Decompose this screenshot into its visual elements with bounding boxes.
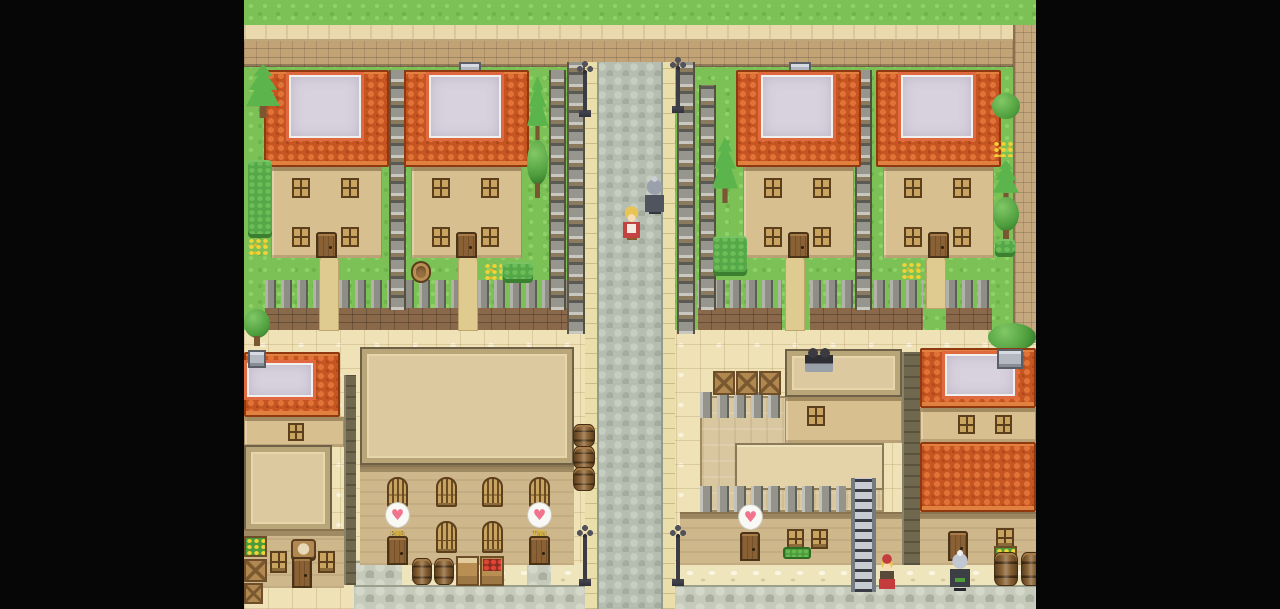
hedge-c: [995, 239, 1015, 257]
east-house-window-c: [996, 528, 1014, 548]
house-3-window-c: [764, 227, 782, 247]
npc-knight-road[interactable]: [644, 175, 665, 214]
house-1-window-d: [341, 227, 359, 247]
west-shop-sign: [291, 539, 316, 559]
west-shop-window-b: [318, 551, 335, 573]
house-1-door[interactable]: [316, 232, 337, 258]
courtyard-crate-a: [713, 371, 735, 395]
npc-knight-south[interactable]: [949, 550, 971, 591]
letterbox-right: [1036, 0, 1280, 609]
road-barrel-b: [573, 446, 595, 469]
pub-barrel-b: [434, 558, 454, 585]
street-lamp-top-east: [670, 56, 686, 113]
house-4-skylight: [898, 72, 976, 141]
pub-arch-window-e: [436, 521, 457, 553]
west-crate-b: [244, 583, 263, 604]
house-2-window-a: [432, 178, 450, 198]
south-inn-planter: [783, 547, 811, 559]
pub-arch-window-c: [482, 477, 503, 507]
road-barrel-a: [573, 424, 595, 447]
house-4-door[interactable]: [928, 232, 949, 258]
courtyard-crate-c: [759, 371, 781, 395]
house-1-skylight: [286, 72, 364, 141]
path-house-1: [319, 253, 339, 331]
south-inn-heart-sign-icon: [738, 504, 763, 530]
round-tree-b: [993, 197, 1019, 241]
player-character[interactable]: [622, 203, 641, 240]
east-border-wall: [1013, 25, 1036, 343]
round-tree-a: [527, 140, 548, 198]
east-dark-wall: [902, 352, 920, 565]
house-2-window-c: [432, 227, 450, 247]
west-shop-chimney: [248, 350, 266, 368]
east-house-chimney: [997, 349, 1023, 369]
house-2-door[interactable]: [456, 232, 477, 258]
pub-arch-window-f: [482, 521, 503, 553]
west-crate-a: [244, 559, 267, 582]
west-flowerbox: [244, 536, 267, 557]
east-house-window-b: [995, 415, 1012, 434]
house-2-window-b: [481, 178, 499, 198]
apple-stand: [480, 556, 504, 586]
west-shop-flatroof: [244, 445, 332, 531]
east-house-roof-lower: [920, 442, 1036, 512]
hedge-column: [248, 160, 272, 238]
cobble-street: [354, 585, 1036, 609]
pub-barrel-a: [412, 558, 432, 585]
courtyard-crate-b: [736, 371, 758, 395]
east-house-wall: [920, 512, 1036, 565]
flowers-d: [993, 141, 1013, 157]
path-house-3: [785, 253, 805, 331]
west-shop-window-a: [270, 551, 287, 573]
house-4-window-d: [953, 227, 971, 247]
hedge-b: [713, 236, 747, 276]
street-lamp-bottom-east: [670, 524, 686, 586]
bush-a: [992, 93, 1020, 119]
warehouse-wall: [785, 397, 902, 443]
stone-fence-a: [265, 280, 319, 330]
pub-door[interactable]: [387, 536, 408, 565]
market-stand: [456, 556, 479, 586]
pillar-fence-b: [549, 70, 566, 310]
warehouse-window: [807, 406, 825, 426]
path-house-2: [458, 253, 478, 331]
hedge-a: [503, 262, 533, 283]
house-1-window-b: [341, 178, 359, 198]
flowers-b: [901, 262, 921, 279]
west-shop-band-window: [288, 423, 304, 441]
west-shop-door[interactable]: [292, 557, 312, 588]
house-3-window-b: [813, 178, 831, 198]
south-inn-window-b: [811, 529, 828, 549]
north-wall-top: [244, 25, 1036, 41]
house-2-window-d: [481, 227, 499, 247]
stone-fence-f: [946, 280, 992, 330]
inn-heart-sign-icon: [527, 502, 552, 528]
house-3-door[interactable]: [788, 232, 809, 258]
round-tree-c: [244, 309, 270, 346]
warehouse-vents: [805, 346, 833, 372]
npc-maid-south[interactable]: [877, 553, 897, 590]
flowers-c: [248, 238, 268, 255]
west-dark-wall: [344, 375, 356, 585]
metal-ladder: [851, 478, 876, 592]
east-house-band: [920, 408, 1036, 442]
path-house-4: [926, 253, 946, 309]
east-barrel-a: [994, 552, 1018, 586]
courtyard-fence-bottom: [700, 486, 846, 512]
east-barrel-b: [1021, 552, 1036, 586]
house-2-skylight: [426, 72, 504, 141]
house-1-window-c: [292, 227, 310, 247]
pillar-fence-c: [699, 85, 716, 310]
house-3-skylight: [758, 72, 836, 141]
house-3-window-a: [764, 178, 782, 198]
street-lamp-bottom-west: [577, 524, 593, 586]
letterbox-left: [0, 0, 244, 609]
inn-door[interactable]: [529, 536, 550, 565]
house-1-window-a: [292, 178, 310, 198]
main-road: [597, 62, 663, 609]
house-4-window-a: [904, 178, 922, 198]
well-bucket: [411, 261, 431, 283]
house-3-window-d: [813, 227, 831, 247]
game-screen: PUBINN: [0, 0, 1280, 609]
warehouse-roof: [785, 349, 902, 397]
south-inn-window-a: [787, 529, 804, 549]
game-area[interactable]: PUBINN: [244, 0, 1036, 609]
house-4-window-c: [904, 227, 922, 247]
flowers-a: [484, 263, 502, 280]
pub-heart-sign-icon: [385, 502, 410, 528]
road-barrel-c: [573, 467, 595, 491]
street-lamp-top-west: [577, 60, 593, 117]
house-4-window-b: [953, 178, 971, 198]
pub-arch-window-b: [436, 477, 457, 507]
south-inn-door[interactable]: [740, 532, 760, 561]
pub-inn-roof: [360, 347, 574, 465]
east-house-window-a: [958, 415, 975, 434]
